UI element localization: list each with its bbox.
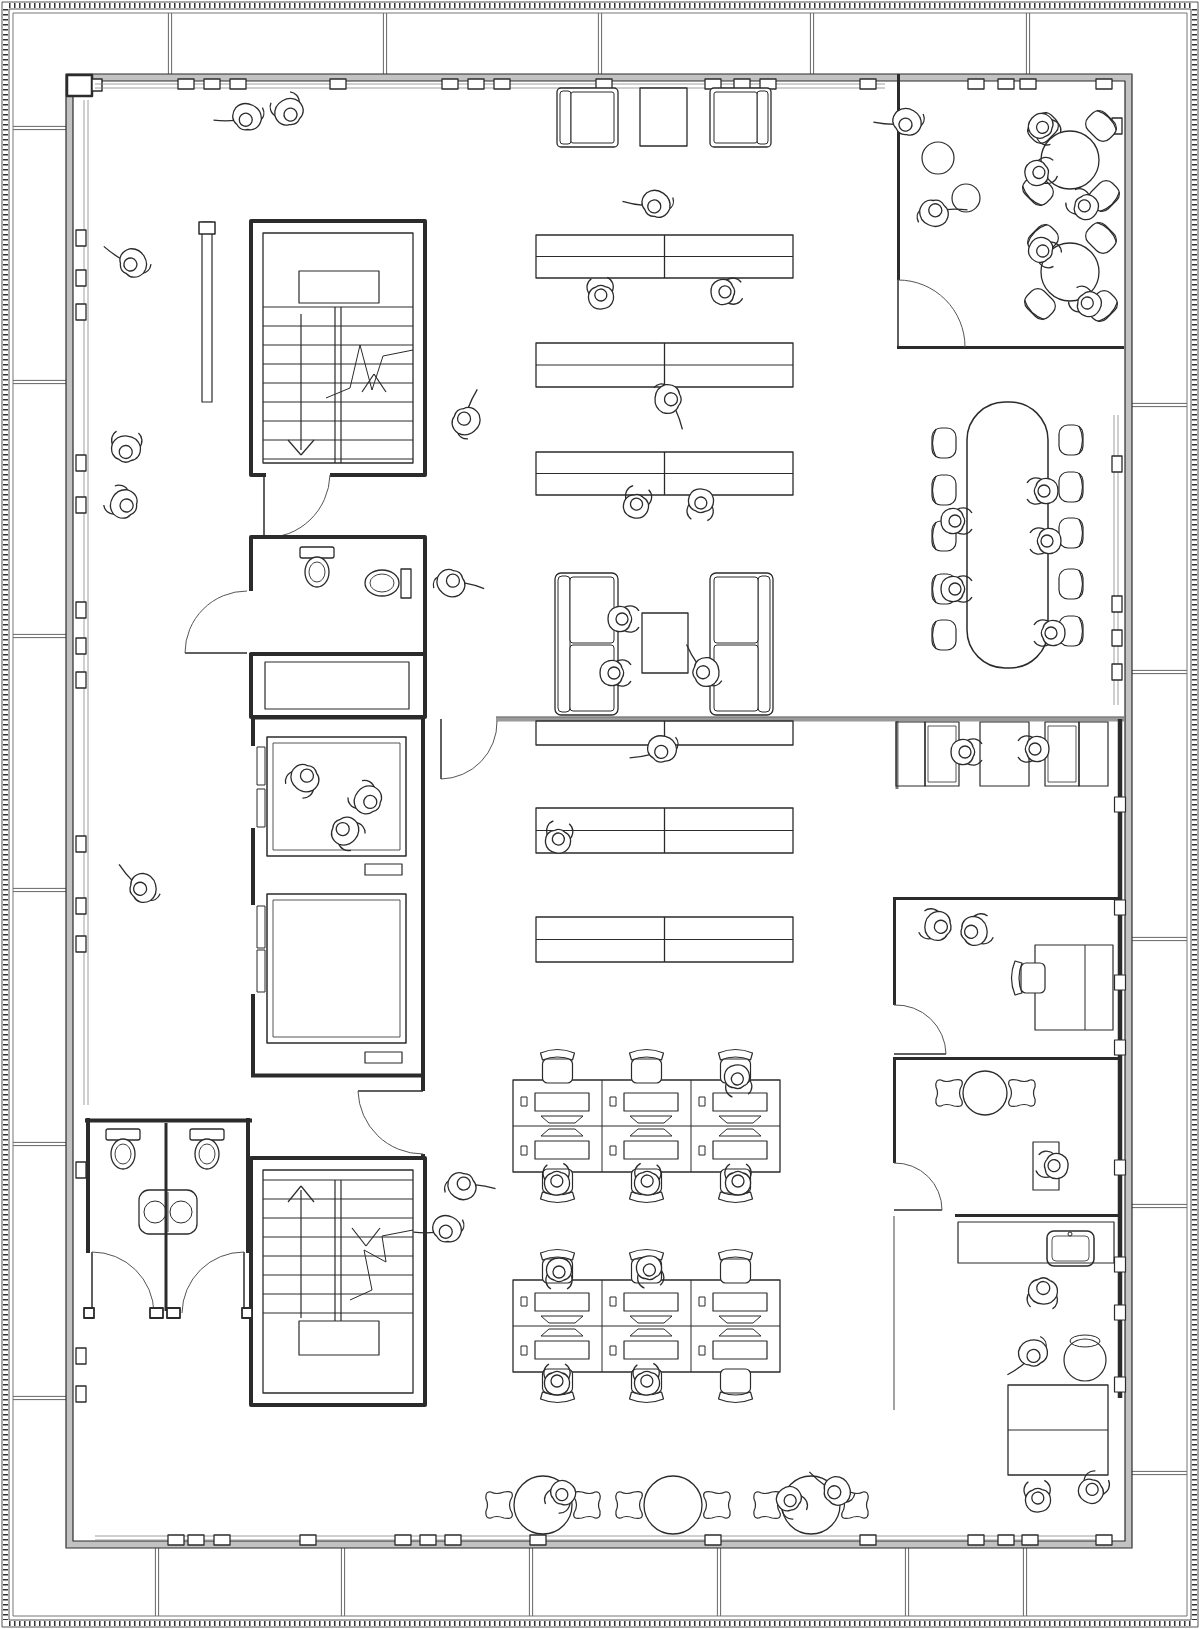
vase-chair — [1009, 1080, 1035, 1107]
window-sill — [395, 1535, 411, 1545]
window-sill — [1022, 1535, 1038, 1545]
office-chair — [1012, 961, 1046, 995]
window-sill — [214, 1535, 230, 1545]
window-sill — [76, 230, 86, 246]
window-sill — [494, 79, 510, 89]
window-sill — [530, 1535, 546, 1545]
window-sill — [178, 79, 194, 89]
window-sill — [860, 79, 876, 89]
floor-plan-sheet — [0, 0, 1200, 1629]
window-sill — [204, 79, 220, 89]
window-sill — [998, 79, 1014, 89]
wall-pilaster — [1115, 900, 1126, 915]
conf-chair — [1059, 472, 1083, 502]
conf-chair — [932, 620, 956, 650]
window-sill — [1096, 79, 1112, 89]
desk-chair — [630, 1050, 664, 1084]
window-sill — [442, 79, 458, 89]
window-sill — [76, 1348, 86, 1364]
wall-pilaster — [1115, 975, 1126, 990]
window-sill — [76, 455, 86, 471]
floor-plan-canvas — [0, 0, 1200, 1629]
wall-pilaster — [1115, 1305, 1126, 1320]
window-sill — [998, 1535, 1014, 1545]
vase-chair — [486, 1492, 512, 1519]
window-sill — [968, 79, 984, 89]
window-sill — [188, 1535, 204, 1545]
entry-glass-screen-cap — [199, 222, 215, 234]
door-post — [167, 1308, 180, 1318]
window-sill — [76, 497, 86, 513]
corner-column — [67, 75, 92, 96]
elevator-door-leaf — [257, 906, 265, 948]
conf-chair — [1059, 425, 1083, 455]
window-sill — [76, 304, 86, 320]
door-post — [150, 1308, 163, 1318]
window-sill — [705, 1535, 721, 1545]
armchair — [557, 88, 618, 147]
vase-chair — [574, 1492, 600, 1519]
wall-pilaster — [1115, 1040, 1126, 1055]
window-sill — [76, 1162, 86, 1178]
conf-chair — [1059, 518, 1083, 548]
desk-chair — [719, 1369, 753, 1403]
elevator-door-leaf — [257, 789, 265, 827]
door-gap-cover — [266, 468, 330, 481]
elevator-door-leaf — [257, 747, 265, 785]
window-sill — [330, 79, 346, 89]
desk-chair — [719, 1250, 753, 1284]
window-sill — [968, 1535, 984, 1545]
armchair — [710, 88, 771, 147]
elevator-door-leaf — [257, 950, 265, 992]
window-sill — [420, 1535, 436, 1545]
wall-pilaster — [1115, 1377, 1126, 1392]
window-sill — [860, 1535, 876, 1545]
door-gap-cover — [246, 591, 257, 653]
window-sill — [168, 1535, 184, 1545]
window-sill — [468, 79, 484, 89]
window-sill — [76, 936, 86, 952]
window-sill — [76, 672, 86, 688]
window-sill — [1020, 79, 1036, 89]
conf-chair — [1059, 569, 1083, 599]
window-sill — [76, 602, 86, 618]
window-sill — [1112, 596, 1122, 612]
window-sill — [445, 1535, 461, 1545]
window-sill — [300, 1535, 316, 1545]
door-post — [84, 1308, 94, 1318]
wall-pilaster — [1115, 1257, 1126, 1272]
sofa — [555, 573, 618, 715]
table — [640, 88, 687, 146]
conf-chair — [932, 475, 956, 505]
window-sill — [230, 79, 246, 89]
vase-chair — [704, 1492, 730, 1519]
door-post — [242, 1308, 252, 1318]
window-sill — [1096, 1535, 1112, 1545]
window-sill — [76, 638, 86, 654]
window-sill — [76, 270, 86, 286]
table — [642, 613, 688, 673]
toilet-side-tank — [401, 569, 411, 598]
desk-chair — [541, 1050, 575, 1084]
corner-column-cap — [92, 79, 102, 91]
sofa — [710, 573, 773, 715]
window-sill — [76, 1386, 86, 1402]
window-sill — [1112, 456, 1122, 472]
window-sill — [1112, 630, 1122, 646]
window-sill — [76, 836, 86, 852]
vase-chair — [936, 1080, 962, 1107]
vase-chair — [616, 1492, 642, 1519]
wall-pilaster — [1115, 1160, 1126, 1175]
conf-chair — [932, 428, 956, 458]
window-sill — [1112, 664, 1122, 680]
window-sill — [76, 898, 86, 914]
wall-pilaster — [1115, 797, 1126, 812]
